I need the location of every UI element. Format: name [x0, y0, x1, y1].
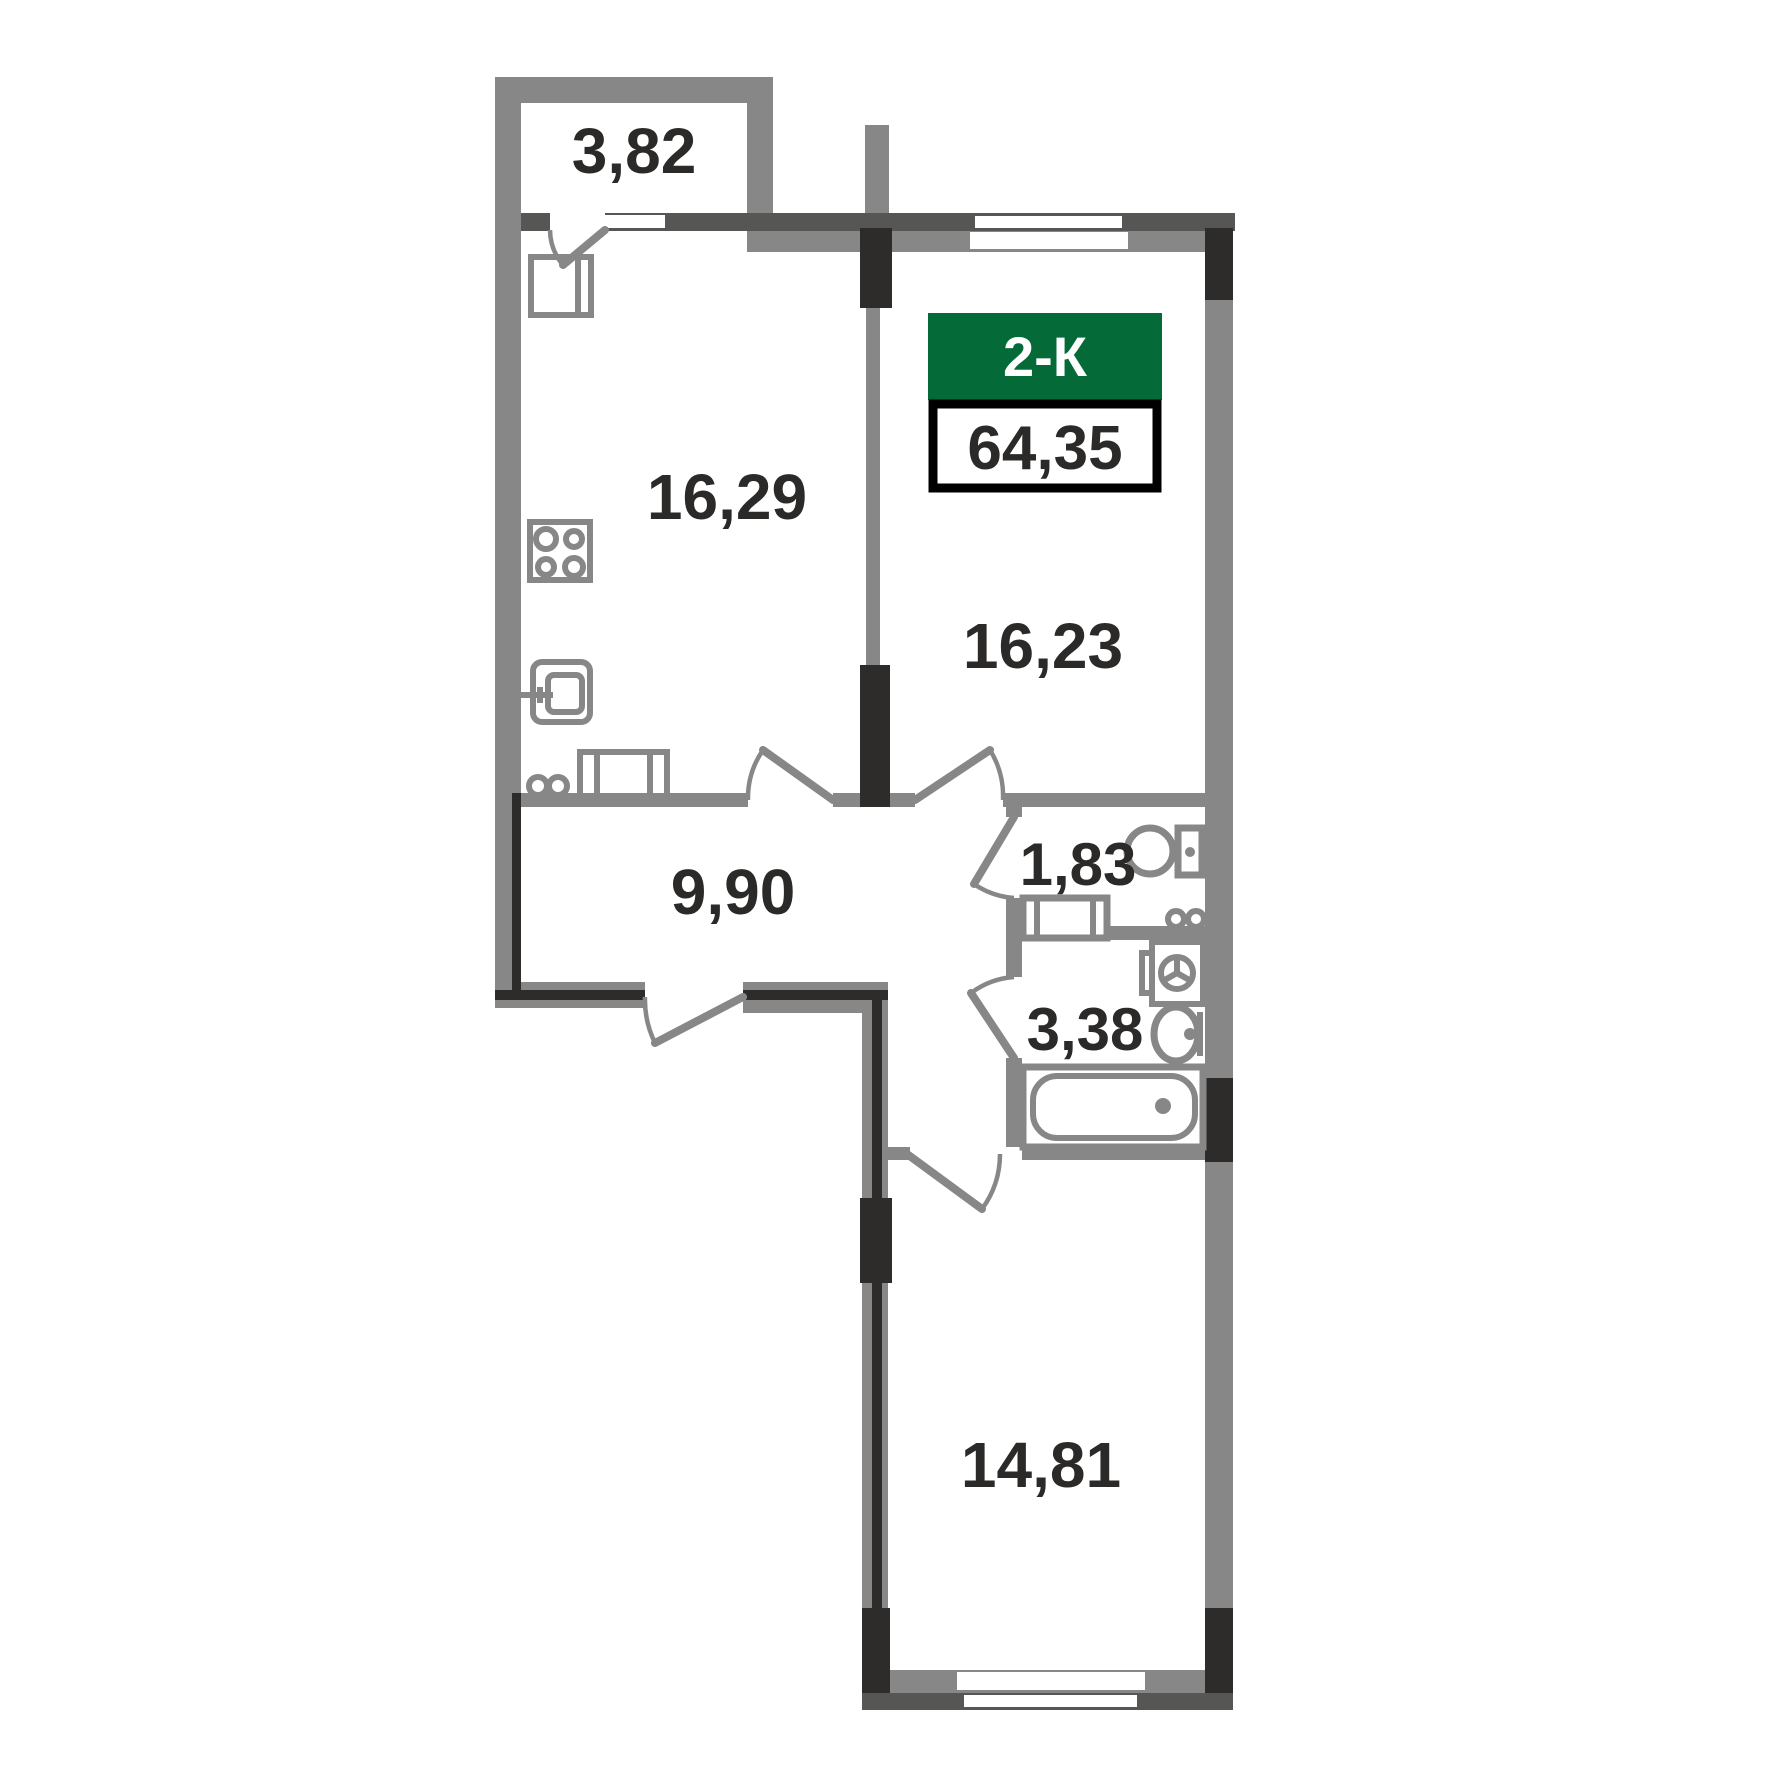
towel-pipes-icon [1168, 911, 1204, 927]
living-window [975, 216, 1122, 228]
wc-top-wall [1003, 793, 1205, 807]
kitchen-area-label: 16,29 [647, 461, 807, 533]
hallway-area-label: 9,90 [671, 856, 796, 928]
balcony-window [605, 215, 665, 228]
balcony-area-label: 3,82 [572, 115, 697, 187]
living-room-door-icon [915, 750, 1003, 800]
washer-cabinet-icon [1023, 898, 1107, 938]
total-area-value: 64,35 [967, 414, 1122, 483]
exterior-wall-stub [865, 125, 889, 213]
bathroom-sink-icon [1154, 1007, 1200, 1061]
bathtub-icon [1023, 1067, 1203, 1147]
floor-plan: 2-К 64,35 3,82 16,29 16,23 9,90 1,83 3,3… [0, 0, 1776, 1776]
washing-machine-icon [1142, 942, 1203, 1004]
living-room-area-label: 16,23 [963, 610, 1123, 682]
bedroom-door-icon [907, 1154, 1000, 1209]
bedroom-area-label: 14,81 [961, 1429, 1121, 1501]
type-badge-label: 2-К [1003, 325, 1088, 388]
balcony-wall-right [747, 77, 773, 231]
apartment-badge: 2-К 64,35 [928, 313, 1162, 488]
floor-plan-canvas: 2-К 64,35 3,82 16,29 16,23 9,90 1,83 3,3… [0, 0, 1776, 1776]
toilet-icon [1127, 828, 1202, 875]
kitchen-door-icon [748, 750, 833, 800]
right-wall [1205, 231, 1233, 1693]
stove-icon [530, 522, 590, 580]
balcony-wall-top [495, 77, 773, 103]
bathroom-area-label: 3,38 [1027, 996, 1144, 1063]
kitchen-counter-icon [580, 752, 667, 797]
bedroom-window [957, 1672, 1145, 1690]
living-door-stub [888, 793, 915, 807]
wc-area-label: 1,83 [1020, 831, 1137, 898]
pipes-icon [529, 777, 567, 795]
kitchen-sink-icon [521, 662, 590, 722]
